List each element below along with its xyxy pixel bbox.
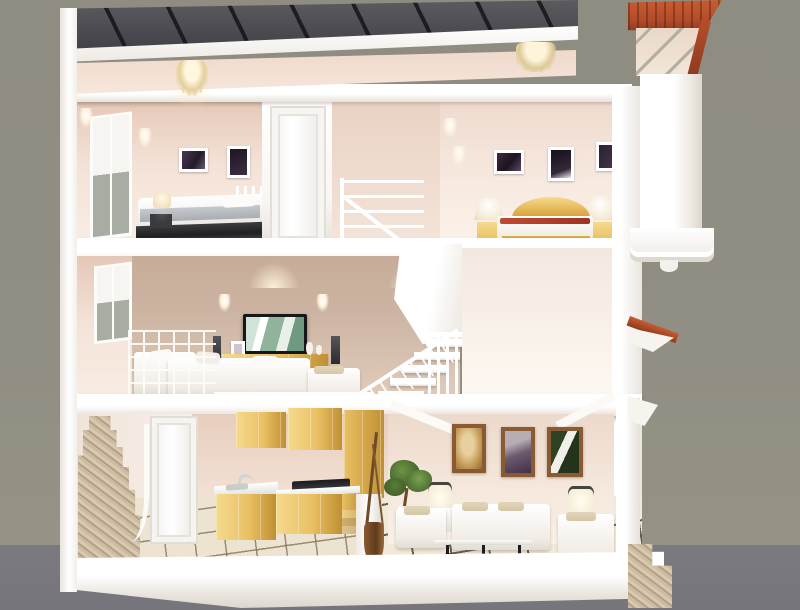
sconce-icon (138, 128, 152, 148)
armchair-cushion (566, 512, 596, 521)
downlight-glow (248, 262, 300, 288)
cornice-cap (630, 228, 714, 262)
ground-door (150, 416, 198, 544)
render-canvas (0, 0, 800, 610)
base-cabinets-right (276, 494, 342, 534)
stair-railing-post (340, 178, 344, 240)
loft-lattice-railing (128, 330, 216, 398)
decor-vase (306, 342, 313, 355)
sofa-pillow (252, 356, 278, 367)
sconce-icon (218, 294, 231, 312)
sconce-icon (452, 146, 466, 166)
left-cut-wall (60, 8, 77, 592)
cornice-corbel (660, 260, 678, 272)
floor-lamp-icon (568, 486, 594, 512)
tv-screen (246, 317, 304, 351)
armchair-cushion (404, 506, 430, 515)
sofa-cushion (498, 502, 524, 511)
crystal-ceiling-lamp-icon (516, 42, 556, 72)
sconce-icon (316, 294, 329, 312)
facade-column-upper (640, 74, 702, 232)
framed-painting (547, 427, 583, 477)
upper-cabinet (288, 408, 342, 450)
sink-base-cabinet (216, 494, 276, 540)
sconce-icon (79, 108, 93, 128)
chandelier-icon (176, 60, 208, 96)
framed-photo (548, 147, 574, 181)
decor-vase (316, 345, 322, 355)
upper-cabinet (236, 412, 286, 448)
framed-painting (501, 427, 535, 477)
speaker-icon (331, 336, 340, 364)
bed-pillow (222, 195, 256, 208)
door-panel (270, 106, 326, 246)
sconce-icon (443, 118, 457, 138)
bed-red-runner (500, 218, 590, 224)
bedroom-window-icon (90, 111, 132, 240)
framed-painting (452, 424, 486, 473)
framed-photo (179, 148, 208, 172)
framed-photo (494, 150, 524, 174)
framed-photo (227, 146, 250, 178)
curved-stair-railing (118, 424, 149, 542)
table-lamp-icon (153, 192, 171, 208)
sofa-cushion (462, 502, 488, 511)
chaise-cushion (314, 366, 344, 374)
plant-foliage (384, 478, 406, 496)
stair-railing-top (340, 180, 424, 240)
empty-room-right (462, 248, 614, 398)
nightstand (150, 214, 172, 228)
table-lamp-icon (428, 482, 452, 508)
mid-window-icon (94, 262, 132, 345)
